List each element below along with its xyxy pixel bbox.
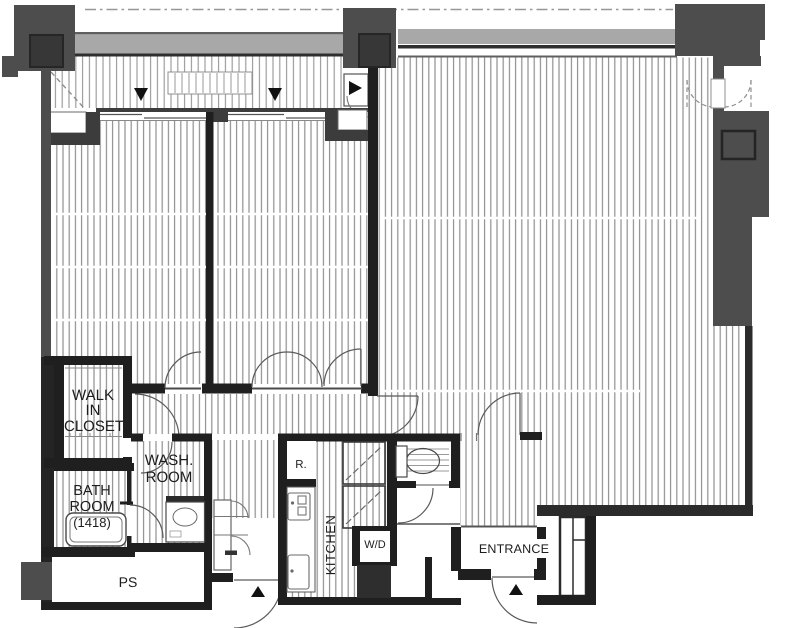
svg-text:ROOM: ROOM xyxy=(146,469,193,486)
svg-text:R.: R. xyxy=(295,459,307,471)
svg-text:ROOM: ROOM xyxy=(69,499,114,515)
svg-text:CLOSET: CLOSET xyxy=(64,418,124,435)
svg-text:IN: IN xyxy=(86,402,101,419)
svg-text:PS: PS xyxy=(119,574,138,590)
svg-text:KITCHEN: KITCHEN xyxy=(323,515,338,576)
svg-text:ENTRANCE: ENTRANCE xyxy=(479,542,549,556)
svg-text:(1418): (1418) xyxy=(73,515,111,530)
svg-text:BATH: BATH xyxy=(73,483,111,499)
svg-text:W/D: W/D xyxy=(364,539,385,551)
svg-text:WASH.: WASH. xyxy=(145,452,194,469)
